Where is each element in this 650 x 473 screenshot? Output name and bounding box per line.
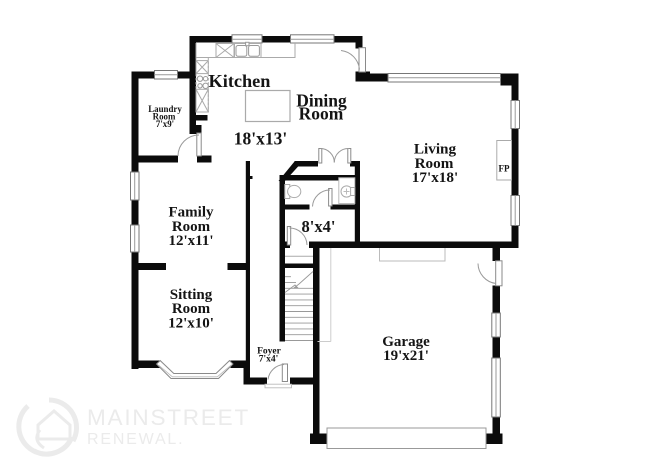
svg-text:8'x4': 8'x4' bbox=[302, 217, 336, 236]
svg-text:17'x18': 17'x18' bbox=[412, 169, 458, 186]
svg-text:12'x11': 12'x11' bbox=[168, 233, 213, 249]
svg-text:Kitchen: Kitchen bbox=[209, 71, 271, 91]
svg-text:Room: Room bbox=[299, 103, 344, 123]
svg-text:MAINSTREET: MAINSTREET bbox=[87, 405, 250, 430]
svg-text:RENEWAL.: RENEWAL. bbox=[87, 431, 184, 448]
svg-text:FP: FP bbox=[499, 164, 510, 174]
svg-text:7'x4': 7'x4' bbox=[259, 354, 279, 364]
svg-text:7'x9': 7'x9' bbox=[156, 119, 174, 129]
svg-text:12'x10': 12'x10' bbox=[168, 315, 214, 331]
svg-text:19'x21': 19'x21' bbox=[383, 348, 429, 364]
svg-text:18'x13': 18'x13' bbox=[234, 128, 287, 148]
